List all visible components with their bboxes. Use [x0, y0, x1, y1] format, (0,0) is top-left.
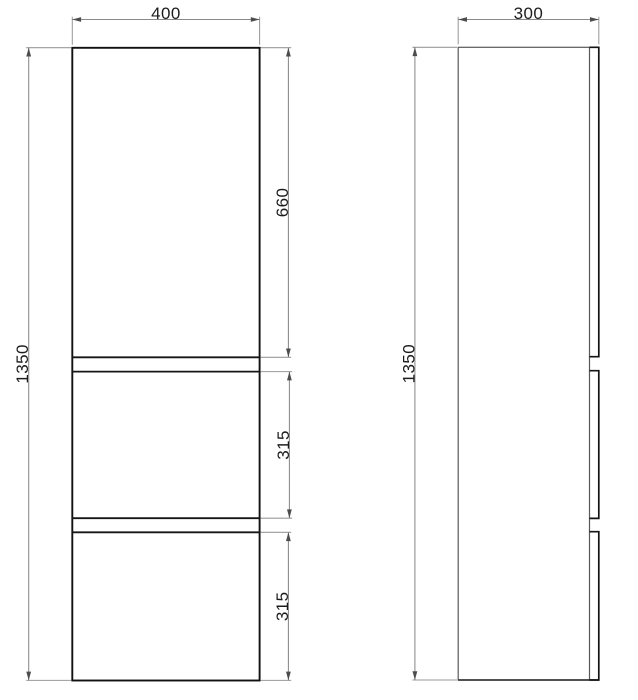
- svg-text:315: 315: [274, 430, 293, 460]
- svg-text:300: 300: [514, 4, 544, 23]
- svg-text:1350: 1350: [399, 344, 418, 383]
- svg-text:1350: 1350: [13, 344, 32, 383]
- svg-text:315: 315: [273, 592, 292, 622]
- svg-text:660: 660: [273, 188, 292, 218]
- svg-text:400: 400: [151, 4, 181, 23]
